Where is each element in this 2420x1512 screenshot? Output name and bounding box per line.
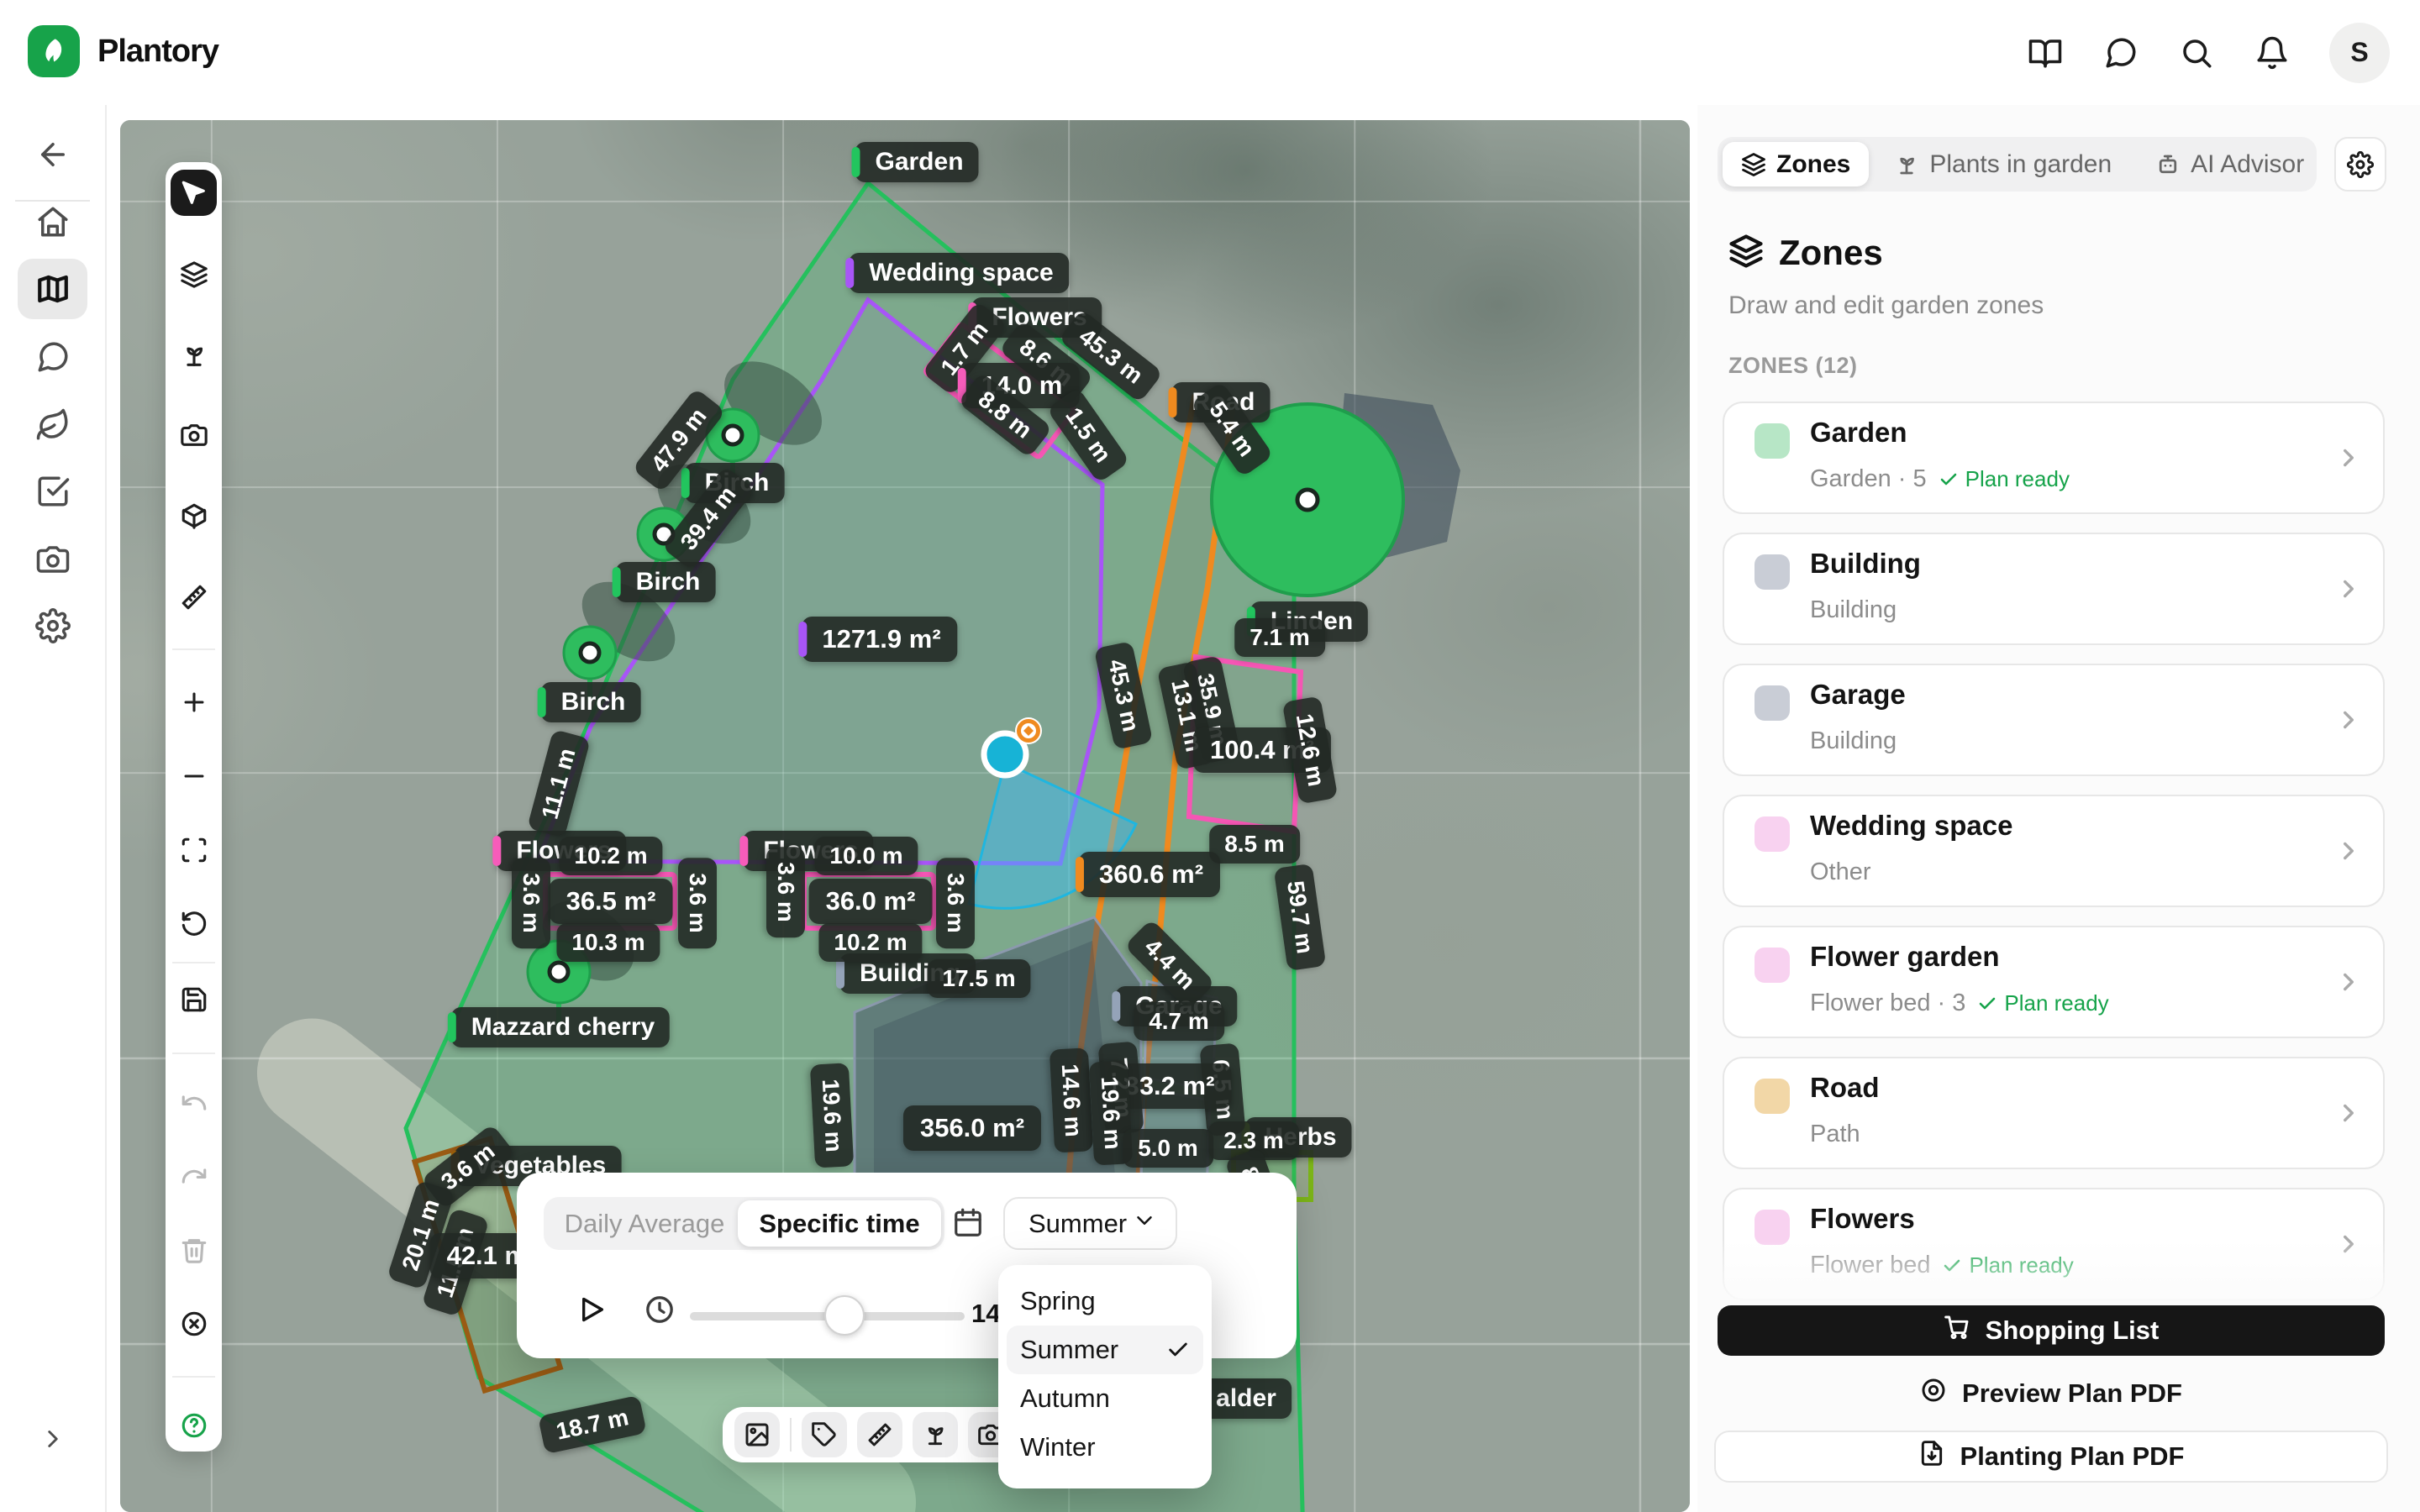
zone-label-mazzard-cherry[interactable]: Mazzard cherry <box>451 1007 670 1047</box>
zone-label-wedding-space[interactable]: Wedding space <box>849 253 1069 293</box>
chevron-right-icon <box>2334 444 2363 476</box>
zoom-in-button[interactable] <box>171 679 217 725</box>
season-value: Summer <box>1028 1209 1127 1239</box>
zone-label-birch[interactable]: Birch <box>541 682 641 722</box>
cart-icon <box>1944 1314 1970 1347</box>
label-accent <box>1169 387 1177 417</box>
season-option-label: Autumn <box>1020 1383 1110 1414</box>
zone-meta: Building <box>1810 596 1897 624</box>
list-fade <box>1697 1239 2420 1306</box>
undo-button[interactable] <box>171 1079 217 1126</box>
zone-meta: Building <box>1810 727 1897 755</box>
user-avatar[interactable]: S <box>2329 23 2390 83</box>
season-option-spring[interactable]: Spring <box>1007 1277 1203 1326</box>
zone-label-birch[interactable]: Birch <box>616 562 716 602</box>
label-accent <box>851 147 860 177</box>
layers-tool[interactable] <box>171 251 217 297</box>
eye-icon <box>1920 1377 1947 1410</box>
notifications-icon[interactable] <box>2254 34 2291 71</box>
tab-label: Zones <box>1776 150 1850 179</box>
zone-name: Flowers <box>1810 1203 1915 1235</box>
zone-type: Other <box>1810 858 1871 886</box>
nav-chat[interactable] <box>0 327 105 387</box>
zones-section-label: ZONES (12) <box>1728 353 1858 379</box>
measurement-badge-3-6-m: 3.6 m <box>678 858 717 948</box>
panel-tabs: ZonesPlants in gardenAI Advisor <box>1718 137 2317 192</box>
zone-name: Building <box>1810 548 1921 580</box>
shopping-list-label: Shopping List <box>1986 1315 2160 1346</box>
layers-icon <box>1728 234 1764 273</box>
measurement-badge-19-6-m: 19.6 m <box>810 1063 854 1168</box>
measurement-badge-10-2-m: 10.2 m <box>818 923 922 962</box>
season-dropdown-menu: SpringSummerAutumnWinter <box>998 1265 1212 1488</box>
nav-home[interactable] <box>0 192 105 252</box>
measurement-badge-5-0-m: 5.0 m <box>1123 1129 1213 1168</box>
file-download-icon <box>1918 1440 1945 1473</box>
map-toolbar <box>166 162 222 1452</box>
home-icon <box>35 204 71 239</box>
chevron-right-icon <box>2334 1099 2363 1131</box>
measurement-badge-11-1-m: 11.1 m <box>527 729 591 837</box>
measurement-badge-36-0-m: 36.0 m² <box>809 879 933 924</box>
zone-card-road[interactable]: RoadPath <box>1723 1057 2385 1169</box>
panel-title: Zones <box>1779 233 1883 273</box>
measure-tool[interactable] <box>171 574 217 620</box>
zone-card-building[interactable]: BuildingBuilding <box>1723 533 2385 645</box>
measurement-badge-1271-9-m: 1271.9 m² <box>802 617 957 662</box>
planting-plan-pdf-button[interactable]: Planting Plan PDF <box>1714 1431 2388 1483</box>
zoom-out-button[interactable] <box>171 753 217 799</box>
measure-button[interactable] <box>857 1412 902 1457</box>
season-option-winter[interactable]: Winter <box>1007 1423 1203 1472</box>
gear-icon <box>35 608 71 643</box>
add-plant-button[interactable] <box>913 1412 958 1457</box>
zone-name: Garden <box>1810 417 1907 449</box>
top-bar: Plantory S <box>0 0 2420 105</box>
fit-view-button[interactable] <box>171 827 217 873</box>
zone-type: Building <box>1810 727 1897 755</box>
measurement-badge-3-6-m: 3.6 m <box>936 858 975 948</box>
chat-icon <box>35 339 71 375</box>
view-3d-tool[interactable] <box>171 492 217 538</box>
zone-card-garage[interactable]: GarageBuilding <box>1723 664 2385 776</box>
plant-tool[interactable] <box>171 332 217 378</box>
measurement-badge-10-3-m: 10.3 m <box>556 923 660 962</box>
zone-type: Garden · 5 <box>1810 465 1927 493</box>
camera-tool[interactable] <box>171 412 217 458</box>
nav-map[interactable] <box>0 259 105 319</box>
panel-header: Zones <box>1728 233 1883 273</box>
zone-type: Flower bed · 3 <box>1810 990 1965 1017</box>
save-button[interactable] <box>171 976 217 1022</box>
label-accent <box>1112 991 1120 1021</box>
nav-photos[interactable] <box>0 529 105 590</box>
tab-ai-advisor[interactable]: AI Advisor <box>2137 142 2323 186</box>
app-logo <box>28 25 80 77</box>
zone-color-swatch <box>1754 423 1790 459</box>
measurement-badge-4-7-m: 4.7 m <box>1134 1002 1224 1041</box>
zone-name: Road <box>1810 1072 1880 1104</box>
delete-button[interactable] <box>171 1226 217 1273</box>
measurement-badge-59-7-m: 59.7 m <box>1274 864 1327 971</box>
background-image-button[interactable] <box>734 1412 780 1457</box>
map-icon <box>35 271 71 307</box>
sidebar <box>0 105 107 1512</box>
bot-icon <box>2155 152 2181 177</box>
zone-color-swatch <box>1754 685 1790 721</box>
zone-meta: Flower bed · 3Plan ready <box>1810 990 2109 1017</box>
zone-card-wedding-space[interactable]: Wedding spaceOther <box>1723 795 2385 907</box>
topbar-actions: S <box>2027 0 2390 105</box>
label-accent <box>836 958 844 989</box>
cancel-button[interactable] <box>171 1300 217 1347</box>
season-option-label: Spring <box>1020 1286 1096 1316</box>
tab-plants-in-garden[interactable]: Plants in garden <box>1875 142 2130 186</box>
chevron-right-icon <box>2334 706 2363 738</box>
label-accent <box>739 836 748 866</box>
season-option-label: Summer <box>1020 1335 1118 1365</box>
tab-label: AI Advisor <box>2191 150 2304 179</box>
measurement-badge-12-6-m: 12.6 m <box>1282 696 1339 804</box>
zone-card-garden[interactable]: GardenGarden · 5Plan ready <box>1723 402 2385 514</box>
zone-meta: Path <box>1810 1121 1860 1148</box>
select-tool[interactable] <box>171 170 217 216</box>
season-dropdown-button[interactable]: Summer <box>1003 1197 1177 1250</box>
toolbar-divider <box>790 1418 792 1452</box>
measurement-badge-14-6-m: 14.6 m <box>1050 1047 1093 1152</box>
measurement-badge-360-6-m: 360.6 m² <box>1079 852 1220 897</box>
plan-ready-badge: Plan ready <box>1977 990 2108 1016</box>
toolbar-divider <box>172 648 215 650</box>
panel-settings-button[interactable] <box>2334 137 2386 192</box>
zone-color-swatch <box>1754 948 1790 983</box>
zone-color-swatch <box>1754 554 1790 590</box>
play-button[interactable] <box>574 1293 608 1331</box>
check-square-icon <box>35 474 71 509</box>
measurement-badge-10-2-m: 10.2 m <box>559 837 662 875</box>
reset-rotation-button[interactable] <box>171 900 217 947</box>
daily-average-tab[interactable]: Daily Average <box>544 1197 745 1250</box>
time-mode-toggle: Daily Average Specific time <box>544 1197 944 1250</box>
chevron-right-icon <box>2334 968 2363 1000</box>
label-accent <box>448 1012 456 1042</box>
nav-plants[interactable] <box>0 395 105 455</box>
label-accent <box>681 468 690 498</box>
calendar-icon <box>952 1207 984 1243</box>
label-accent <box>1076 857 1084 891</box>
label-accent <box>538 687 546 717</box>
chevron-down-icon <box>1132 1208 1157 1240</box>
zone-meta: Garden · 5Plan ready <box>1810 465 2070 493</box>
measurement-badge-8-5-m: 8.5 m <box>1209 825 1300 864</box>
measurement-badge-3-6-m: 3.6 m <box>512 858 550 948</box>
zone-name: Flower garden <box>1810 941 2000 973</box>
map-canvas[interactable]: GardenWedding spaceFlowersRoadBirchBirch… <box>120 120 1690 1512</box>
measurement-badge-17-5-m: 17.5 m <box>927 959 1030 998</box>
time-slider-handle[interactable] <box>824 1295 865 1336</box>
specific-time-tab[interactable]: Specific time <box>738 1200 941 1247</box>
tab-zones[interactable]: Zones <box>1723 142 1869 186</box>
back-button[interactable] <box>0 124 105 185</box>
zone-type: Path <box>1810 1121 1860 1148</box>
chevron-right-icon <box>39 1425 67 1453</box>
layers-icon <box>1741 152 1766 177</box>
measurement-badge-1-5-m: 1.5 m <box>1046 387 1129 484</box>
plan-ready-badge: Plan ready <box>1939 466 2070 492</box>
camera-icon <box>35 542 71 577</box>
zone-label-alder[interactable]: alder <box>1201 1378 1292 1419</box>
leaf-logo-icon <box>37 34 71 68</box>
redo-button[interactable] <box>171 1152 217 1199</box>
expand-sidebar[interactable] <box>0 1409 105 1469</box>
search-icon[interactable] <box>2178 34 2215 71</box>
toolbar-divider <box>172 1053 215 1054</box>
zone-list: GardenGarden · 5Plan readyBuildingBuildi… <box>1723 402 2385 1319</box>
zone-card-flower-garden[interactable]: Flower gardenFlower bed · 3Plan ready <box>1723 926 2385 1038</box>
measurement-badge-18-7-m: 18.7 m <box>538 1395 647 1455</box>
label-button[interactable] <box>802 1412 847 1457</box>
measurement-badge-7-1-m: 7.1 m <box>1234 618 1325 657</box>
label-accent <box>798 622 807 656</box>
zone-name: Wedding space <box>1810 810 2012 842</box>
zone-label-garden[interactable]: Garden <box>855 142 978 182</box>
label-accent <box>613 567 621 597</box>
shopping-list-button[interactable]: Shopping List <box>1718 1305 2385 1356</box>
zones-panel: ZonesPlants in gardenAI Advisor Zones Dr… <box>1697 105 2420 1512</box>
check-icon <box>1166 1338 1190 1362</box>
season-option-autumn[interactable]: Autumn <box>1007 1374 1203 1423</box>
toolbar-divider <box>172 962 215 963</box>
app-title: Plantory <box>97 34 218 70</box>
chevron-right-icon <box>2334 575 2363 607</box>
zone-meta: Other <box>1810 858 1871 886</box>
tab-label: Plants in garden <box>1929 150 2112 179</box>
clock-icon <box>643 1293 676 1331</box>
panel-subtitle: Draw and edit garden zones <box>1728 291 2044 320</box>
app-window: Plantory S <box>0 0 2420 1512</box>
leaf-icon <box>35 407 71 443</box>
toolbar-divider <box>172 1376 215 1378</box>
chevron-right-icon <box>2334 837 2363 869</box>
measurement-badge-36-5-m: 36.5 m² <box>550 879 673 924</box>
nav-tasks[interactable] <box>0 461 105 522</box>
messages-icon[interactable] <box>2102 34 2139 71</box>
season-option-label: Winter <box>1020 1432 1096 1462</box>
measurement-badge-45-3-m: 45.3 m <box>1094 641 1154 750</box>
measurement-badge-356-0-m: 356.0 m² <box>903 1105 1041 1151</box>
arrow-left-icon <box>35 137 71 172</box>
zone-name: Garage <box>1810 679 1906 711</box>
sprout-icon <box>1894 152 1919 177</box>
preview-plan-label: Preview Plan PDF <box>1962 1378 2182 1409</box>
planting-plan-label: Planting Plan PDF <box>1960 1441 2185 1472</box>
help-button[interactable] <box>171 1402 217 1448</box>
nav-settings[interactable] <box>0 596 105 656</box>
preview-plan-pdf-button[interactable]: Preview Plan PDF <box>1718 1370 2385 1417</box>
guide-icon[interactable] <box>2027 34 2064 71</box>
zone-color-swatch <box>1754 1079 1790 1114</box>
measurement-badge-3-6-m: 3.6 m <box>766 847 805 937</box>
zone-type: Building <box>1810 596 1897 624</box>
season-option-summer[interactable]: Summer <box>1007 1326 1203 1374</box>
label-accent <box>492 836 501 866</box>
zone-color-swatch <box>1754 816 1790 852</box>
label-accent <box>845 258 854 288</box>
measurement-badge-10-0-m: 10.0 m <box>814 837 918 875</box>
